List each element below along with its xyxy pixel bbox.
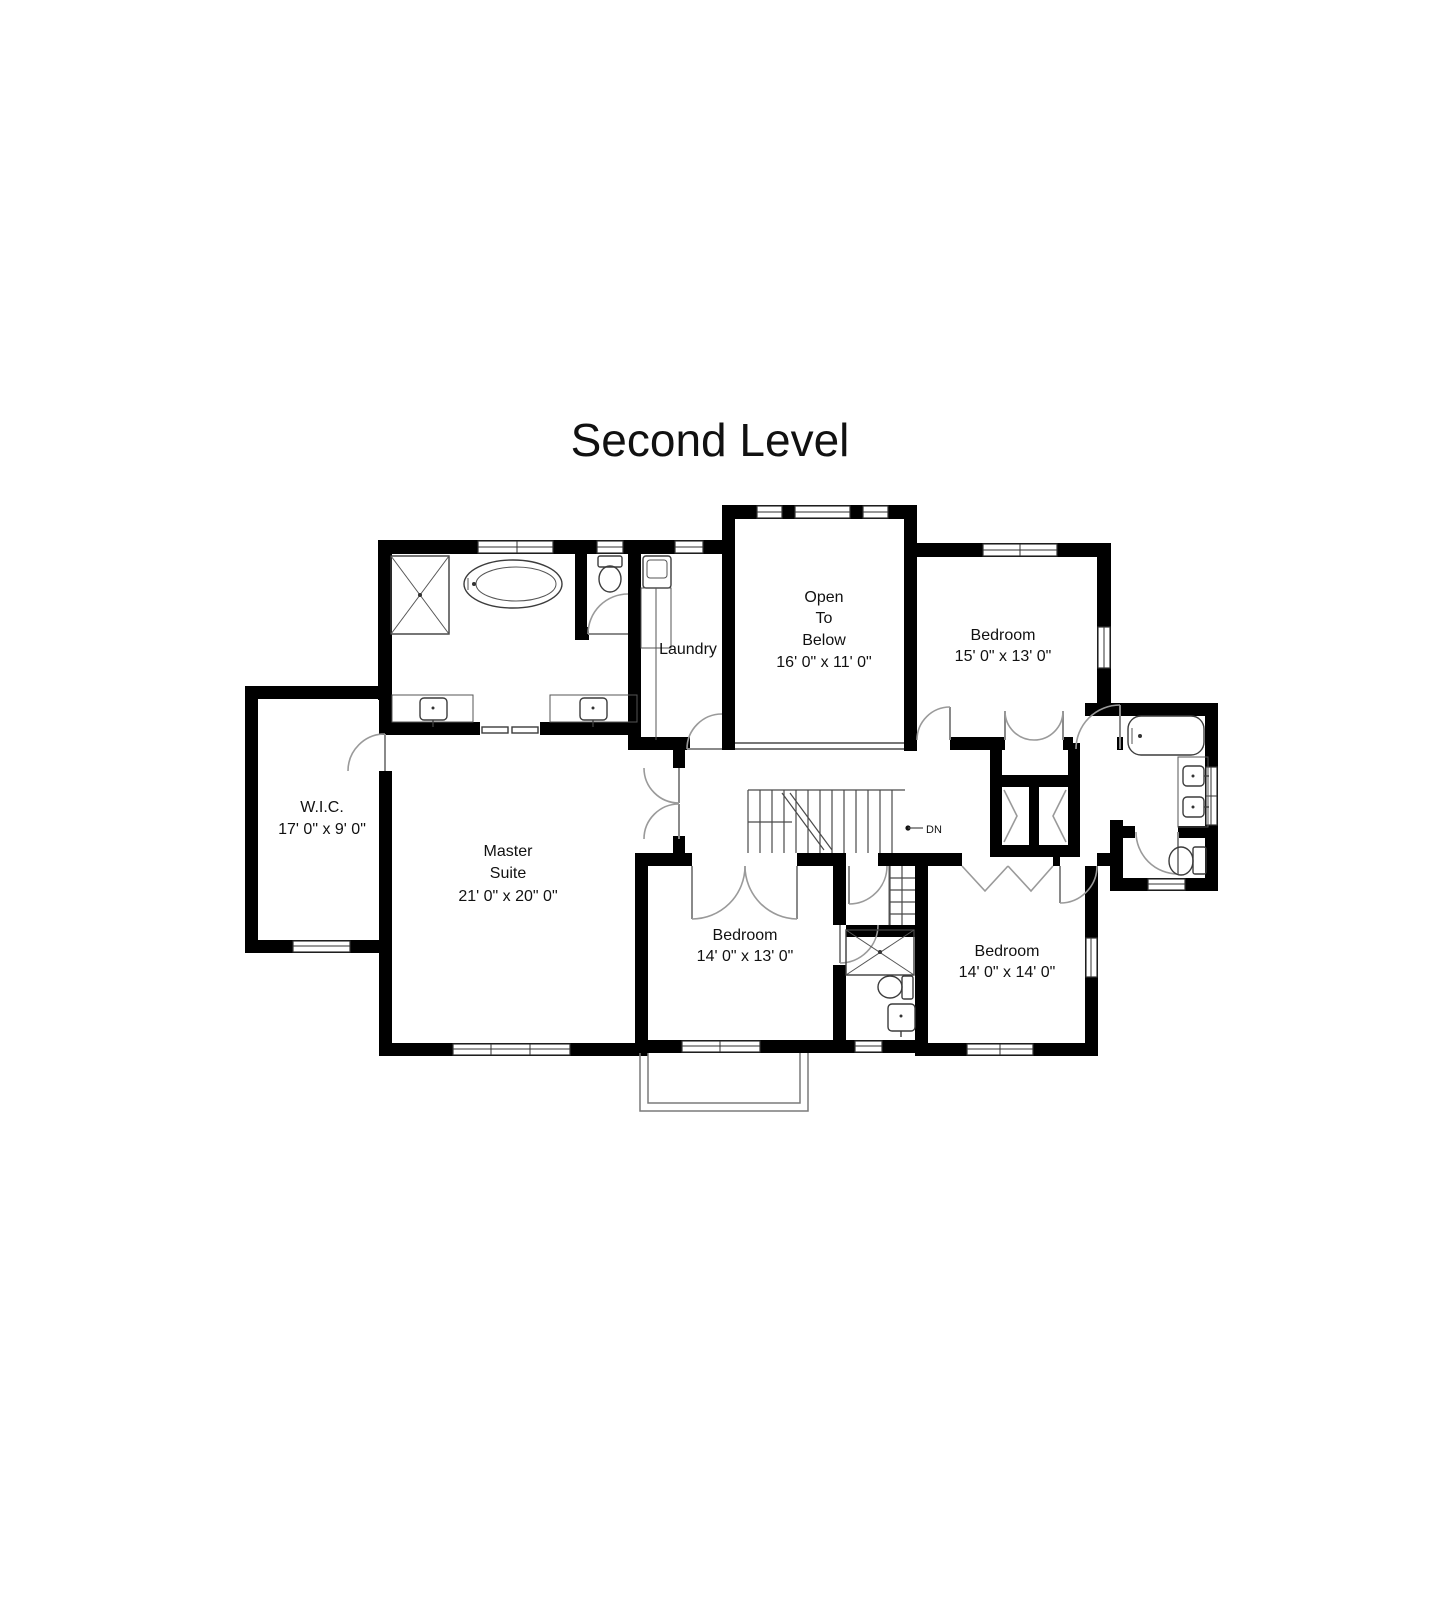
master-suite-double-doors — [644, 768, 679, 839]
room-label-master-line2: Suite — [490, 865, 527, 882]
toilet-room-door — [588, 594, 628, 634]
room-label-otb-line2: To — [816, 610, 833, 627]
window — [1098, 627, 1110, 668]
room-dims-master: 21' 0" x 20" 0" — [458, 888, 557, 905]
room-dims-otb: 16' 0" x 11' 0" — [776, 654, 871, 671]
room-dims-bedroom3: 14' 0" x 14' 0" — [959, 964, 1056, 981]
room-label-otb-line3: Below — [802, 632, 846, 649]
bedroom2-doors — [692, 866, 797, 919]
stairs-down-label: DN — [926, 824, 942, 836]
floor-plan-page: Second Level W.I.C. 17' 0" x 9' 0" Maste… — [0, 0, 1440, 1600]
window — [293, 941, 350, 952]
shared-bath-vanity — [1178, 757, 1209, 827]
window — [1148, 879, 1185, 890]
bath2-sink — [888, 1004, 915, 1037]
room-label-wic: W.I.C. — [300, 799, 344, 816]
window — [757, 506, 782, 518]
room-label-master-line1: Master — [484, 843, 534, 860]
wic-door — [348, 734, 385, 771]
master-toilet — [598, 556, 622, 592]
deck — [640, 1053, 808, 1111]
bath2-toilet — [878, 976, 913, 999]
room-dims-bedroom2: 14' 0" x 13' 0" — [697, 948, 794, 965]
room-label-laundry: Laundry — [659, 641, 717, 658]
window — [478, 541, 553, 553]
master-shower — [391, 556, 449, 634]
room-label-bedroom1: Bedroom — [971, 627, 1036, 644]
page-title: Second Level — [571, 414, 850, 466]
hall-closet-door — [849, 866, 887, 904]
bedroom1-door — [917, 707, 950, 740]
room-dims-bedroom1: 15' 0" x 13' 0" — [955, 648, 1052, 665]
window — [1086, 938, 1097, 977]
labels: Second Level W.I.C. 17' 0" x 9' 0" Maste… — [278, 414, 1055, 981]
shared-bath-toilet — [1169, 847, 1206, 875]
window — [597, 541, 623, 553]
room-label-bedroom3: Bedroom — [975, 943, 1040, 960]
master-bath-doors — [482, 727, 538, 733]
window — [855, 1041, 882, 1052]
laundry-door — [687, 714, 722, 749]
shared-bath-tub — [1128, 716, 1204, 755]
room-dims-wic: 17' 0" x 9' 0" — [278, 821, 366, 838]
room-label-otb-line1: Open — [804, 589, 843, 606]
floor-plan-drawing: Second Level W.I.C. 17' 0" x 9' 0" Maste… — [0, 0, 1440, 1600]
bedroom1-closet-doors — [1005, 711, 1063, 740]
bedroom3-closet-bifold — [962, 866, 1053, 891]
window — [863, 506, 888, 518]
window — [967, 1044, 1033, 1055]
open-to-below-railing — [735, 743, 904, 749]
room-label-bedroom2: Bedroom — [713, 927, 778, 944]
stairs-down-arrow — [905, 825, 923, 830]
master-vanity-right — [550, 695, 637, 727]
master-tub — [464, 560, 562, 608]
window — [682, 1041, 760, 1052]
window — [983, 544, 1057, 556]
master-vanity-left — [392, 695, 473, 727]
window — [795, 506, 850, 518]
window — [675, 541, 703, 553]
window — [453, 1044, 570, 1055]
